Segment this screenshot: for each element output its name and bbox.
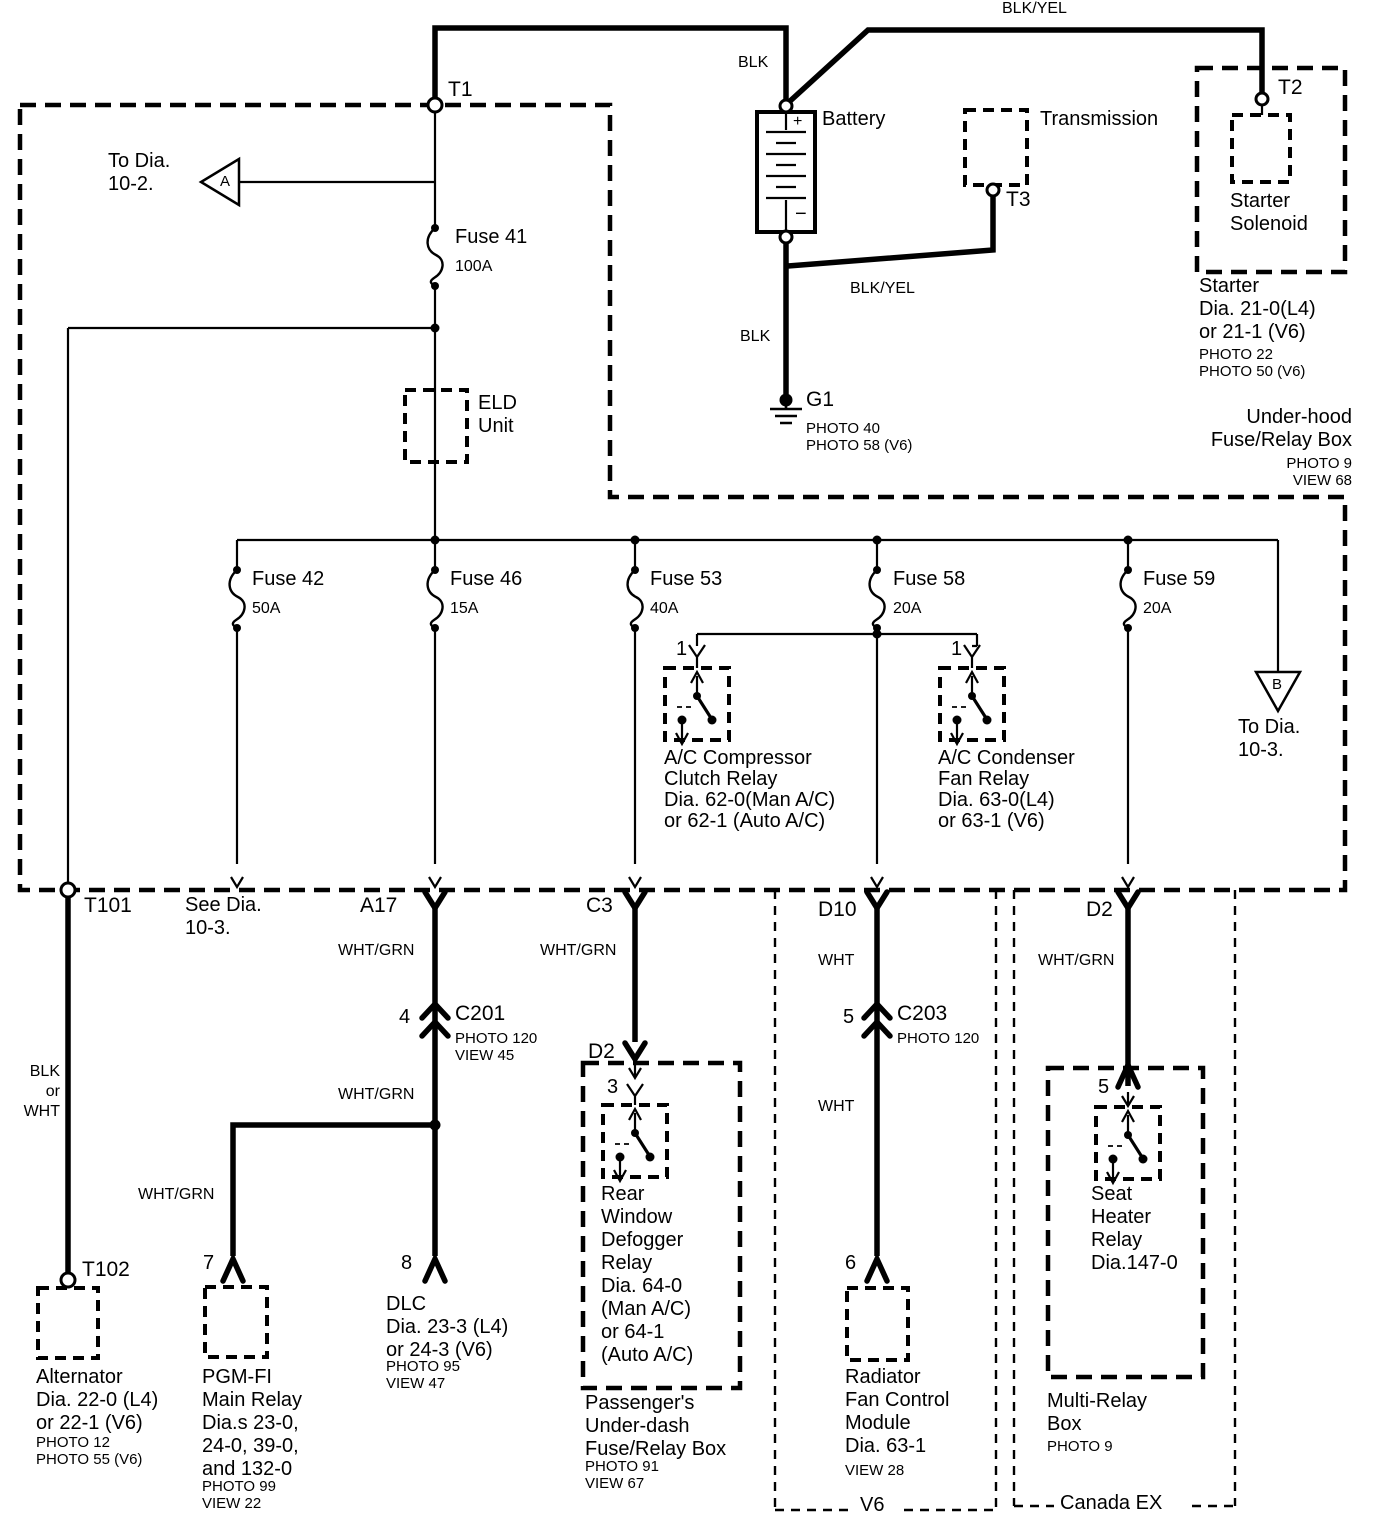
canada-ex-label: Canada EX	[1060, 1492, 1162, 1515]
ground-symbol	[770, 394, 802, 424]
dlc-label: DLC Dia. 23-3 (L4) or 24-3 (V6)	[386, 1293, 508, 1362]
wht-grn-a17: WHT/GRN	[338, 942, 414, 960]
underhood-notes: PHOTO 9 VIEW 68	[1286, 455, 1352, 489]
c203-notes: PHOTO 120	[897, 1030, 979, 1047]
fuse-42-amps: 50A	[252, 600, 280, 618]
t3-label: T3	[1006, 188, 1031, 212]
fuse-53-amps: 40A	[650, 600, 678, 618]
blk-yel-top-label: BLK/YEL	[1002, 0, 1067, 18]
wht-grn-d2: WHT/GRN	[1038, 952, 1114, 970]
battery-minus-sign: −	[795, 203, 807, 226]
passenger-box-label: Passenger's Under-dash Fuse/Relay Box	[585, 1392, 726, 1461]
d2-mid-connector	[625, 1043, 645, 1059]
condenser-relay-pin: 1	[951, 638, 962, 661]
defog-pin: 3	[607, 1076, 618, 1099]
fuse-41-name: Fuse 41	[455, 226, 527, 249]
battery-minus-terminal	[780, 231, 792, 243]
starter-solenoid-box	[1197, 68, 1345, 272]
eld-unit-label: ELD Unit	[478, 392, 517, 438]
d2-mid-label: D2	[588, 1040, 615, 1064]
pgm-pin: 7	[203, 1252, 214, 1275]
g1-label: G1	[806, 388, 834, 412]
ac-compressor-clutch-relay-symbol	[665, 668, 729, 744]
c203-label: C203	[897, 1002, 947, 1026]
battery-label: Battery	[822, 108, 885, 131]
fuse-58-symbol	[870, 566, 885, 632]
terminal-t3	[987, 184, 999, 196]
fuse-58-amps: 20A	[893, 600, 921, 618]
blk-ground-label: BLK	[740, 328, 770, 346]
c201-notes: PHOTO 120 VIEW 45	[455, 1030, 537, 1064]
dlc-pin8-connector	[425, 1259, 445, 1281]
radiator-notes: VIEW 28	[845, 1462, 904, 1479]
t101-label: T101	[84, 894, 132, 918]
c3-label: C3	[586, 894, 613, 918]
wiring-diagram: BLK/YEL T1 BLK Battery + − Transmission …	[0, 0, 1376, 1536]
pgm-label: PGM-FI Main Relay Dia.s 23-0, 24-0, 39-0…	[202, 1366, 302, 1481]
fuse-46-amps: 15A	[450, 600, 478, 618]
fuse-46-name: Fuse 46	[450, 568, 522, 591]
radiator-pin6-connector	[867, 1259, 887, 1281]
seat-relay-label: Seat Heater Relay Dia.147-0	[1091, 1183, 1178, 1275]
fuse-42-symbol	[230, 566, 245, 632]
terminal-t1	[428, 98, 442, 112]
transmission-box	[965, 110, 1027, 185]
wht-d10: WHT	[818, 952, 854, 970]
blk-yel-wire	[789, 30, 1262, 102]
defog-label: Rear Window Defogger Relay Dia. 64-0 (Ma…	[601, 1183, 693, 1367]
battery-plus-sign: +	[793, 113, 802, 131]
battery-positive-wire	[435, 28, 786, 100]
d2-right-label: D2	[1086, 898, 1113, 922]
compressor-relay-label: A/C Compressor Clutch Relay Dia. 62-0(Ma…	[664, 748, 835, 832]
blk-or-wht-label: BLK or WHT	[10, 1062, 60, 1122]
alternator-box	[38, 1288, 98, 1358]
dlc-notes: PHOTO 95 VIEW 47	[386, 1358, 460, 1392]
condenser-relay-label: A/C Condenser Fan Relay Dia. 63-0(L4) or…	[938, 748, 1075, 832]
starter-notes: PHOTO 22 PHOTO 50 (V6)	[1199, 346, 1305, 380]
pgm-main-relay-box	[205, 1287, 267, 1357]
a17-connector	[425, 892, 445, 908]
pgm-notes: PHOTO 99 VIEW 22	[202, 1478, 276, 1512]
wht-d10b: WHT	[818, 1098, 854, 1116]
fuse-41-amps: 100A	[455, 258, 492, 276]
fuse-42-name: Fuse 42	[252, 568, 324, 591]
radiator-fan-module-box	[847, 1288, 908, 1360]
t1-label: T1	[448, 78, 473, 102]
v6-label: V6	[860, 1494, 884, 1517]
battery-plus-terminal	[780, 100, 792, 112]
starter-inner-box	[1232, 115, 1290, 182]
terminal-t101	[61, 883, 75, 897]
wht-grn-c3: WHT/GRN	[540, 942, 616, 960]
seat-heater-relay-symbol	[1096, 1107, 1160, 1183]
to-dia-10-3-label: To Dia. 10-3.	[1238, 716, 1300, 762]
fuse-59-symbol	[1121, 566, 1136, 632]
wht-grn-pgm: WHT/GRN	[138, 1186, 214, 1204]
c203-pin: 5	[843, 1006, 854, 1029]
terminal-t2	[1256, 93, 1268, 105]
starter-solenoid-label: Starter Solenoid	[1230, 190, 1308, 236]
fuse-59-name: Fuse 59	[1143, 568, 1215, 591]
fuse-41-symbol	[428, 224, 443, 290]
dlc-pin: 8	[401, 1252, 412, 1275]
a17-label: A17	[360, 894, 397, 918]
radiator-label: Radiator Fan Control Module Dia. 63-1	[845, 1366, 950, 1458]
t2-label: T2	[1278, 76, 1303, 100]
starter-ref-label: Starter Dia. 21-0(L4) or 21-1 (V6)	[1199, 275, 1316, 344]
ref-a-letter: A	[220, 174, 230, 189]
wht-grn-a17b: WHT/GRN	[338, 1086, 414, 1104]
underhood-box-label: Under-hood Fuse/Relay Box	[1211, 406, 1352, 452]
fuse-59-amps: 20A	[1143, 600, 1171, 618]
radiator-pin: 6	[845, 1252, 856, 1275]
c3-connector	[625, 892, 645, 908]
seat-pin: 5	[1098, 1076, 1109, 1099]
d10-label: D10	[818, 898, 857, 922]
transmission-label: Transmission	[1040, 108, 1158, 131]
c201-label: C201	[455, 1002, 505, 1026]
terminal-t102	[61, 1273, 75, 1287]
multi-relay-label: Multi-Relay Box	[1047, 1390, 1147, 1436]
c201-pin: 4	[399, 1006, 410, 1029]
multi-relay-notes: PHOTO 9	[1047, 1438, 1113, 1455]
fuse-58-name: Fuse 58	[893, 568, 965, 591]
passenger-notes: PHOTO 91 VIEW 67	[585, 1458, 659, 1492]
fuse-46-symbol	[428, 566, 443, 632]
alternator-label: Alternator Dia. 22-0 (L4) or 22-1 (V6)	[36, 1366, 158, 1435]
pgm-pin7-connector	[223, 1259, 243, 1281]
ac-condenser-fan-relay-symbol	[940, 668, 1004, 744]
g1-notes: PHOTO 40 PHOTO 58 (V6)	[806, 420, 912, 454]
compressor-relay-pin: 1	[676, 638, 687, 661]
alternator-notes: PHOTO 12 PHOTO 55 (V6)	[36, 1434, 142, 1468]
see-dia-label: See Dia. 10-3.	[185, 894, 262, 940]
d10-connector	[867, 892, 887, 908]
pgm-branch-wire	[233, 1125, 435, 1256]
fuse-53-name: Fuse 53	[650, 568, 722, 591]
ref-b-letter: B	[1272, 677, 1282, 692]
d2-connector	[1118, 892, 1138, 908]
fuse-53-symbol	[628, 566, 643, 632]
blk-battery-label: BLK	[738, 54, 768, 72]
t102-label: T102	[82, 1258, 130, 1282]
rear-window-defogger-relay-symbol	[603, 1105, 667, 1181]
blk-yel-trans-label: BLK/YEL	[850, 280, 915, 298]
to-dia-10-2-label: To Dia. 10-2.	[108, 150, 170, 196]
